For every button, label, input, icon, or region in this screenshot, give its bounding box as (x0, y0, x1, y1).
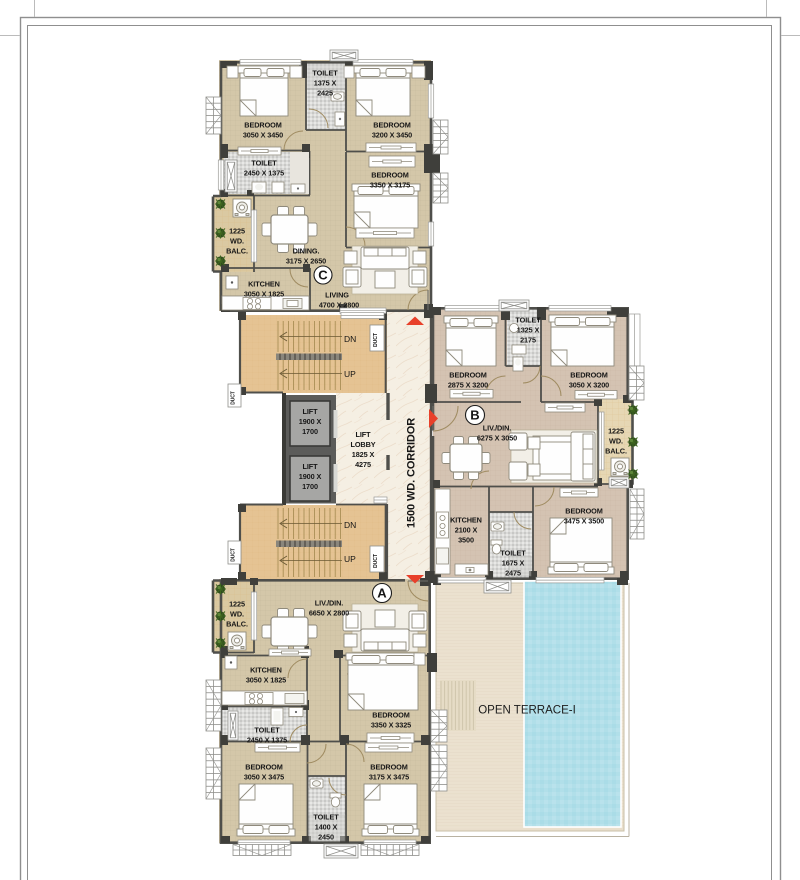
svg-text:2100 X: 2100 X (455, 526, 478, 535)
svg-text:WD.: WD. (230, 237, 244, 246)
svg-text:KITCHEN: KITCHEN (450, 516, 482, 525)
svg-text:3050 X 3200: 3050 X 3200 (569, 381, 609, 390)
svg-text:BEDROOM: BEDROOM (370, 763, 407, 772)
svg-text:3200 X 3450: 3200 X 3450 (372, 131, 412, 140)
svg-text:1225: 1225 (229, 227, 245, 236)
svg-text:DN: DN (344, 334, 356, 344)
svg-text:DUCT: DUCT (231, 391, 237, 405)
svg-text:2475: 2475 (505, 569, 521, 578)
svg-text:3475 X 3500: 3475 X 3500 (564, 517, 604, 526)
svg-text:1900 X: 1900 X (299, 417, 322, 426)
svg-text:1225: 1225 (229, 600, 245, 609)
svg-text:LOBBY: LOBBY (350, 440, 375, 449)
svg-text:3175 X 2650: 3175 X 2650 (286, 257, 326, 266)
svg-text:TOILET: TOILET (500, 549, 526, 558)
svg-text:3050 X 3450: 3050 X 3450 (243, 131, 283, 140)
svg-text:3050 X 1825: 3050 X 1825 (246, 676, 286, 685)
svg-text:TOILET: TOILET (254, 726, 280, 735)
svg-text:BALC.: BALC. (226, 247, 248, 256)
svg-text:1900 X: 1900 X (299, 472, 322, 481)
svg-text:6275 X 3050: 6275 X 3050 (477, 434, 517, 443)
svg-text:WD.: WD. (609, 437, 623, 446)
svg-text:DN: DN (344, 520, 356, 530)
svg-text:2175: 2175 (520, 336, 536, 345)
svg-text:UP: UP (344, 369, 356, 379)
svg-text:BEDROOM: BEDROOM (373, 121, 410, 130)
svg-text:3500: 3500 (458, 536, 474, 545)
svg-text:TOILET: TOILET (251, 159, 277, 168)
svg-text:KITCHEN: KITCHEN (250, 666, 282, 675)
svg-text:2450 X 1375: 2450 X 1375 (244, 169, 284, 178)
svg-text:BEDROOM: BEDROOM (565, 507, 602, 516)
svg-text:6650 X 2800: 6650 X 2800 (309, 609, 349, 618)
svg-text:4700 X 2800: 4700 X 2800 (319, 301, 359, 310)
svg-text:1500 WD. CORRIDOR: 1500 WD. CORRIDOR (406, 418, 418, 528)
svg-text:BALC.: BALC. (605, 447, 627, 456)
svg-text:1700: 1700 (302, 427, 318, 436)
svg-text:BALC.: BALC. (226, 620, 248, 629)
svg-text:3350 X 3175: 3350 X 3175 (370, 181, 410, 190)
svg-text:BEDROOM: BEDROOM (371, 171, 408, 180)
svg-text:UP: UP (344, 554, 356, 564)
svg-text:LIFT: LIFT (303, 407, 319, 416)
svg-text:1825 X: 1825 X (352, 450, 375, 459)
svg-text:1700: 1700 (302, 482, 318, 491)
svg-text:LIVING: LIVING (325, 291, 349, 300)
svg-text:1375 X: 1375 X (314, 79, 337, 88)
svg-text:BEDROOM: BEDROOM (570, 371, 607, 380)
svg-text:B: B (470, 408, 479, 423)
svg-text:3050 X 1825: 3050 X 1825 (244, 290, 284, 299)
svg-text:BEDROOM: BEDROOM (244, 121, 281, 130)
svg-text:BEDROOM: BEDROOM (449, 371, 486, 380)
svg-text:1675 X: 1675 X (502, 559, 525, 568)
svg-text:C: C (318, 268, 328, 283)
svg-text:DUCT: DUCT (231, 548, 237, 562)
svg-text:BEDROOM: BEDROOM (245, 763, 282, 772)
svg-text:4275: 4275 (355, 460, 371, 469)
svg-text:LIFT: LIFT (303, 462, 319, 471)
svg-text:3050 X 3475: 3050 X 3475 (244, 773, 284, 782)
svg-text:DUCT: DUCT (373, 332, 379, 347)
svg-text:KITCHEN: KITCHEN (248, 280, 280, 289)
svg-text:LIFT: LIFT (356, 430, 372, 439)
svg-text:3175 X 3475: 3175 X 3475 (369, 773, 409, 782)
svg-text:2450 X 1375: 2450 X 1375 (247, 736, 287, 745)
svg-text:DINING.: DINING. (293, 247, 320, 256)
svg-text:TOILET: TOILET (515, 316, 541, 325)
svg-text:2450: 2450 (318, 833, 334, 842)
svg-text:A: A (377, 586, 387, 601)
svg-text:2875 X 3200: 2875 X 3200 (448, 381, 488, 390)
svg-text:LIV./DIN.: LIV./DIN. (483, 424, 512, 433)
svg-text:1400 X: 1400 X (315, 823, 338, 832)
svg-text:BEDROOM: BEDROOM (372, 711, 409, 720)
svg-text:TOILET: TOILET (312, 69, 338, 78)
svg-text:1225: 1225 (608, 427, 624, 436)
svg-text:TOILET: TOILET (313, 813, 339, 822)
svg-text:2425: 2425 (317, 89, 333, 98)
svg-text:WD.: WD. (230, 610, 244, 619)
svg-text:1325 X: 1325 X (517, 326, 540, 335)
svg-text:OPEN TERRACE-I: OPEN TERRACE-I (478, 705, 576, 717)
svg-text:LIV./DIN.: LIV./DIN. (315, 599, 344, 608)
svg-text:DUCT: DUCT (373, 553, 379, 568)
svg-text:3350 X 3325: 3350 X 3325 (371, 721, 411, 730)
